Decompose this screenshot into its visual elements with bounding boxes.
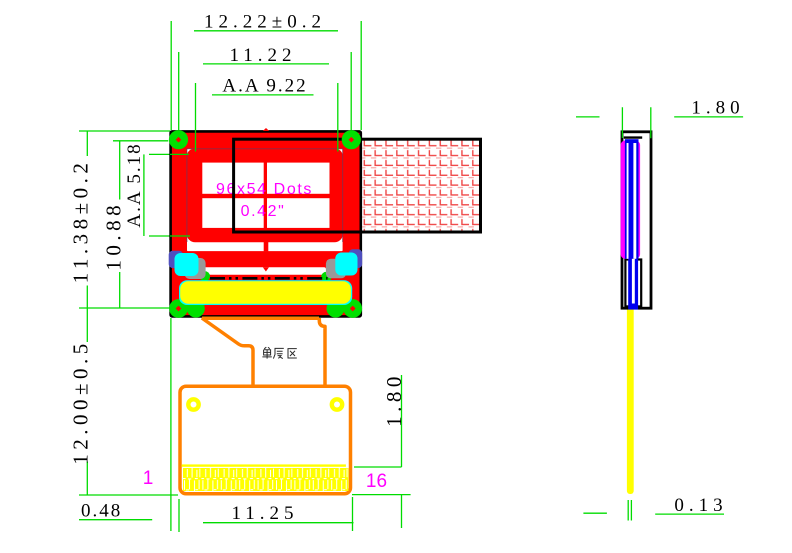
svg-text:A.A 5.18: A.A 5.18 [124, 142, 145, 227]
svg-text:0.42": 0.42" [241, 203, 286, 220]
svg-text:12.00±0.5: 12.00±0.5 [69, 339, 93, 465]
svg-text:0.13: 0.13 [674, 495, 727, 516]
svg-text:12.22±0.2: 12.22±0.2 [204, 12, 326, 33]
svg-text:1: 1 [143, 468, 154, 489]
svg-text:0.48: 0.48 [81, 501, 122, 522]
svg-text:96x54 Dots: 96x54 Dots [216, 181, 313, 198]
svg-text:1.80: 1.80 [691, 98, 744, 119]
svg-text:11.22: 11.22 [229, 45, 296, 66]
svg-text:11.25: 11.25 [231, 503, 298, 524]
svg-text:11.38±0.2: 11.38±0.2 [69, 159, 93, 284]
svg-text:16: 16 [366, 471, 387, 492]
svg-text:A.A 9.22: A.A 9.22 [222, 76, 307, 97]
svg-text:10.88: 10.88 [102, 201, 126, 271]
svg-text:1.80: 1.80 [382, 372, 406, 427]
